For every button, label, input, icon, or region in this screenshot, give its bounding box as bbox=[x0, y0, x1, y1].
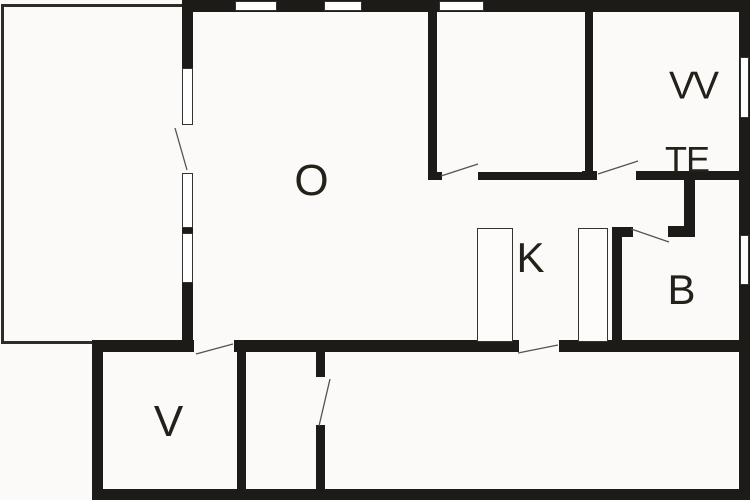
room-label-bedroom: V bbox=[154, 400, 182, 444]
door-opening-terrace bbox=[182, 125, 193, 173]
door-opening-bedroom bbox=[194, 340, 234, 352]
room-label-bathroom: B bbox=[667, 269, 694, 311]
wall-bath-left bbox=[612, 227, 622, 340]
terrace-wall-bottom bbox=[1, 341, 93, 344]
wall-exterior-bottom bbox=[92, 489, 750, 500]
window-left-1 bbox=[182, 68, 193, 125]
wall-top-room-left-foot bbox=[428, 172, 442, 180]
door-swing-lines bbox=[0, 0, 750, 500]
wall-bedroom-right bbox=[237, 343, 246, 489]
window-top-3 bbox=[439, 1, 484, 11]
window-left-2 bbox=[182, 173, 193, 228]
window-left-3 bbox=[182, 233, 193, 283]
wall-vv-left-foot bbox=[582, 171, 597, 180]
room-label-kitchen: K bbox=[516, 237, 543, 279]
terrace-wall-left bbox=[1, 4, 4, 343]
kitchen-counter-right bbox=[578, 228, 608, 342]
window-top-2 bbox=[324, 1, 362, 11]
room-label-toilet: TE bbox=[665, 142, 709, 178]
wall-top-room-bottom bbox=[478, 172, 593, 180]
wall-exterior-left-lower bbox=[92, 340, 103, 500]
window-top-1 bbox=[235, 1, 277, 11]
kitchen-counter-left bbox=[477, 228, 513, 342]
door-opening-hall-divider bbox=[316, 377, 325, 425]
terrace-wall-top bbox=[1, 4, 185, 7]
door-opening-hall bbox=[519, 340, 559, 352]
floor-plan: O VV TE K B V bbox=[0, 0, 750, 500]
door-leaf-top-room bbox=[441, 164, 478, 176]
door-leaf-vv-room bbox=[598, 161, 638, 174]
wall-toilet-foot bbox=[668, 226, 695, 237]
wall-vv-left bbox=[585, 12, 593, 171]
room-label-living: O bbox=[294, 159, 327, 203]
door-leaf-bathroom bbox=[631, 229, 669, 242]
wall-top-room-left bbox=[428, 12, 437, 172]
room-label-vv-room: VV bbox=[669, 67, 717, 106]
wall-bath-top-stub bbox=[612, 227, 633, 237]
wall-mid-horizontal bbox=[92, 340, 750, 352]
window-right-2 bbox=[740, 235, 749, 285]
window-right-1 bbox=[740, 57, 749, 118]
